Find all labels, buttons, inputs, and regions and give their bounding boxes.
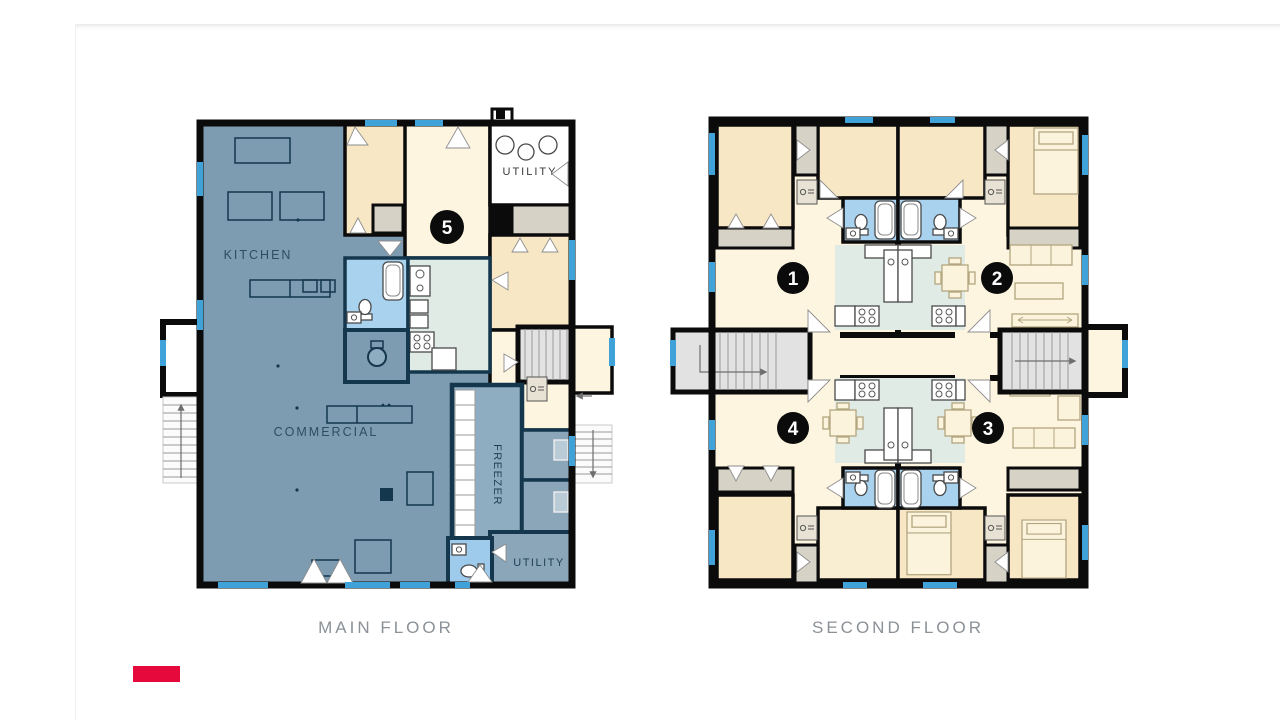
stove-icon bbox=[932, 306, 956, 326]
bedroom-unit2-b bbox=[898, 125, 985, 198]
water-heater-icon bbox=[539, 136, 557, 154]
water-heater-icon bbox=[985, 180, 1005, 204]
window bbox=[345, 582, 390, 588]
window bbox=[197, 300, 203, 330]
kitchen-sink-icon bbox=[898, 250, 912, 302]
closet-unit1 bbox=[717, 228, 793, 248]
stove-icon bbox=[410, 332, 434, 352]
unit-badge-1-number: 1 bbox=[788, 269, 799, 290]
bedroom-unit1-a bbox=[717, 125, 793, 228]
window bbox=[923, 582, 957, 588]
window bbox=[709, 262, 715, 292]
closet-unit3 bbox=[1008, 468, 1080, 490]
window bbox=[569, 436, 575, 466]
stove-icon bbox=[855, 380, 879, 400]
room-utility-top bbox=[490, 123, 572, 205]
water-heater-icon bbox=[527, 377, 547, 401]
armchair-icon bbox=[1058, 396, 1080, 420]
water-heater-icon bbox=[797, 516, 817, 540]
utility-bottom-label: UTILITY bbox=[513, 557, 564, 569]
freezer-label: FREEZER bbox=[491, 444, 503, 506]
window bbox=[365, 120, 397, 126]
stove-icon bbox=[855, 306, 879, 326]
water-heater-icon bbox=[985, 516, 1005, 540]
window bbox=[455, 582, 470, 588]
window bbox=[415, 120, 443, 126]
window bbox=[845, 117, 873, 123]
entry-stub-block bbox=[496, 110, 505, 119]
unit-badge-5-number: 5 bbox=[442, 218, 453, 239]
sink-icon bbox=[347, 312, 361, 323]
kitchen-sink-icon bbox=[884, 250, 898, 302]
unit-badge-2-number: 2 bbox=[992, 269, 1003, 290]
floor-plan-second: 1 2 3 4 bbox=[660, 100, 1160, 600]
commercial-label: COMMERCIAL bbox=[274, 425, 379, 439]
second-floor-caption: SECOND FLOOR bbox=[768, 618, 1028, 638]
sink-icon bbox=[944, 472, 958, 483]
stairwell-left bbox=[673, 330, 810, 392]
main-floor-caption: MAIN FLOOR bbox=[256, 618, 516, 638]
bathtub-icon bbox=[901, 470, 921, 508]
closet-main-right bbox=[512, 205, 572, 235]
window bbox=[930, 117, 955, 123]
window bbox=[160, 340, 166, 366]
bedroom-unit4-b bbox=[818, 508, 898, 580]
utility-top-label: UTILITY bbox=[503, 166, 558, 178]
window bbox=[1082, 135, 1088, 175]
window bbox=[1082, 525, 1088, 560]
bed-icon bbox=[907, 512, 951, 575]
freezer-shelving bbox=[455, 390, 475, 560]
window bbox=[218, 582, 268, 588]
water-heater-icon bbox=[797, 180, 817, 204]
unit-badge-3-number: 3 bbox=[983, 419, 994, 440]
window bbox=[1122, 340, 1128, 368]
bedroom-unit1-b bbox=[818, 125, 898, 198]
bed-icon bbox=[1022, 520, 1066, 578]
kitchen-label: KITCHEN bbox=[224, 248, 293, 262]
window bbox=[400, 582, 430, 588]
landing-right bbox=[1085, 327, 1125, 395]
mop-sink-icon bbox=[368, 348, 386, 366]
window bbox=[569, 240, 575, 280]
water-heater-icon bbox=[496, 136, 514, 154]
unit-badge-4-number: 4 bbox=[788, 419, 799, 440]
floor-plan-main: FREEZER UTILITY KITCHEN COMMERCIAL UTILI… bbox=[140, 100, 640, 600]
vestibule-main-left bbox=[163, 322, 200, 395]
kitchen-sink-icon bbox=[884, 408, 898, 460]
closet-unit4 bbox=[717, 468, 793, 492]
window bbox=[709, 420, 715, 450]
sofa-icon bbox=[1013, 428, 1075, 448]
sink-icon bbox=[452, 544, 466, 555]
sofa-icon bbox=[1010, 245, 1072, 265]
window bbox=[709, 133, 715, 175]
bedroom-unit4-a bbox=[717, 495, 793, 580]
wall-block bbox=[490, 205, 512, 235]
sink-icon bbox=[846, 472, 860, 483]
kitchen-sink-icon bbox=[898, 408, 912, 460]
sink-icon bbox=[944, 228, 958, 239]
window bbox=[670, 340, 676, 366]
window bbox=[197, 162, 203, 196]
coffee-table-icon bbox=[1015, 283, 1063, 299]
bathtub-icon bbox=[383, 262, 403, 300]
stairs-main-interior bbox=[518, 327, 572, 382]
brand-bar bbox=[133, 666, 180, 682]
window bbox=[609, 338, 615, 366]
stove-icon bbox=[932, 380, 956, 400]
landing-main-right bbox=[572, 327, 612, 393]
bed-icon bbox=[1034, 128, 1078, 194]
window bbox=[843, 582, 867, 588]
bathtub-icon bbox=[875, 201, 895, 239]
fridge-icon bbox=[432, 348, 456, 370]
window bbox=[1082, 415, 1088, 445]
sink-icon bbox=[846, 228, 860, 239]
water-heater-icon bbox=[518, 144, 534, 160]
bathtub-icon bbox=[901, 201, 921, 239]
closet-main-top bbox=[373, 205, 403, 233]
window bbox=[1082, 255, 1088, 285]
window bbox=[709, 530, 715, 565]
bathtub-icon bbox=[875, 470, 895, 508]
